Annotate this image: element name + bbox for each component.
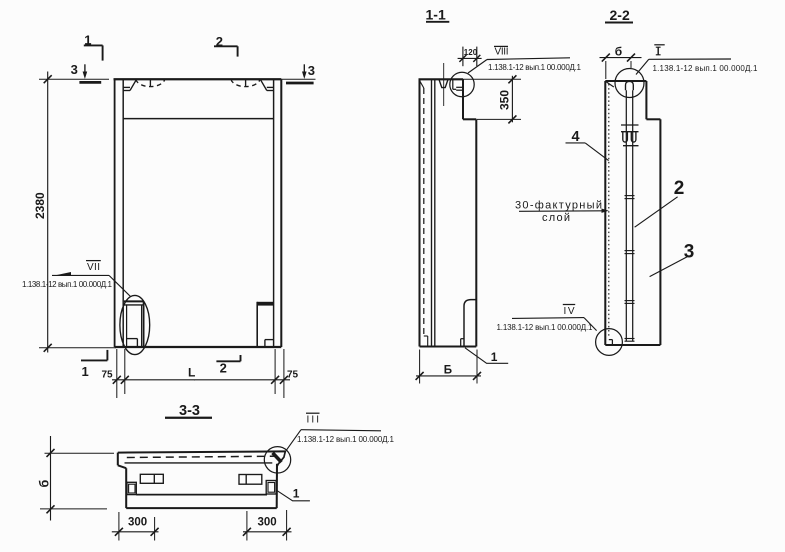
svg-text:120: 120 bbox=[464, 48, 478, 57]
svg-text:75: 75 bbox=[287, 369, 299, 380]
svg-text:слой: слой bbox=[542, 212, 570, 224]
svg-text:1.138.1-12 вып.1 00.000Д.1: 1.138.1-12 вып.1 00.000Д.1 bbox=[497, 323, 594, 332]
svg-text:б: б bbox=[38, 480, 52, 488]
svg-text:75: 75 bbox=[102, 369, 114, 380]
svg-text:3: 3 bbox=[308, 63, 315, 78]
svg-text:1.138.1-12 вып.1 00.000Д.1: 1.138.1-12 вып.1 00.000Д.1 bbox=[297, 435, 395, 444]
svg-text:2: 2 bbox=[674, 178, 685, 199]
svg-text:1.138.1-12 вып.1 00.000Д.1: 1.138.1-12 вып.1 00.000Д.1 bbox=[22, 280, 113, 289]
svg-text:IV: IV bbox=[564, 306, 575, 317]
svg-text:III: III bbox=[307, 415, 320, 426]
svg-text:2: 2 bbox=[220, 361, 227, 376]
svg-text:1: 1 bbox=[82, 364, 89, 379]
svg-text:1: 1 bbox=[491, 350, 498, 364]
svg-text:2-2: 2-2 bbox=[610, 7, 630, 23]
svg-text:1-1: 1-1 bbox=[426, 6, 446, 22]
svg-text:3: 3 bbox=[684, 242, 695, 263]
svg-text:30-фактурный: 30-фактурный bbox=[515, 199, 602, 211]
svg-text:б: б bbox=[615, 44, 622, 58]
svg-text:2380: 2380 bbox=[33, 192, 47, 219]
svg-text:VII: VII bbox=[87, 262, 100, 273]
svg-text:.: . bbox=[194, 376, 196, 383]
svg-text:3: 3 bbox=[71, 62, 78, 77]
svg-text:Б: Б bbox=[444, 364, 452, 376]
svg-text:300: 300 bbox=[128, 516, 147, 528]
svg-text:3-3: 3-3 bbox=[179, 403, 200, 419]
svg-text:350: 350 bbox=[498, 90, 512, 110]
svg-text:1.138.1-12 вып.1 00.000Д.1: 1.138.1-12 вып.1 00.000Д.1 bbox=[653, 64, 759, 73]
svg-text:VIII: VIII bbox=[495, 47, 509, 58]
svg-text:300: 300 bbox=[258, 516, 277, 528]
svg-text:1.138.1-12 вып.1 00.000Д.1: 1.138.1-12 вып.1 00.000Д.1 bbox=[488, 63, 582, 72]
svg-text:1: 1 bbox=[293, 487, 300, 501]
